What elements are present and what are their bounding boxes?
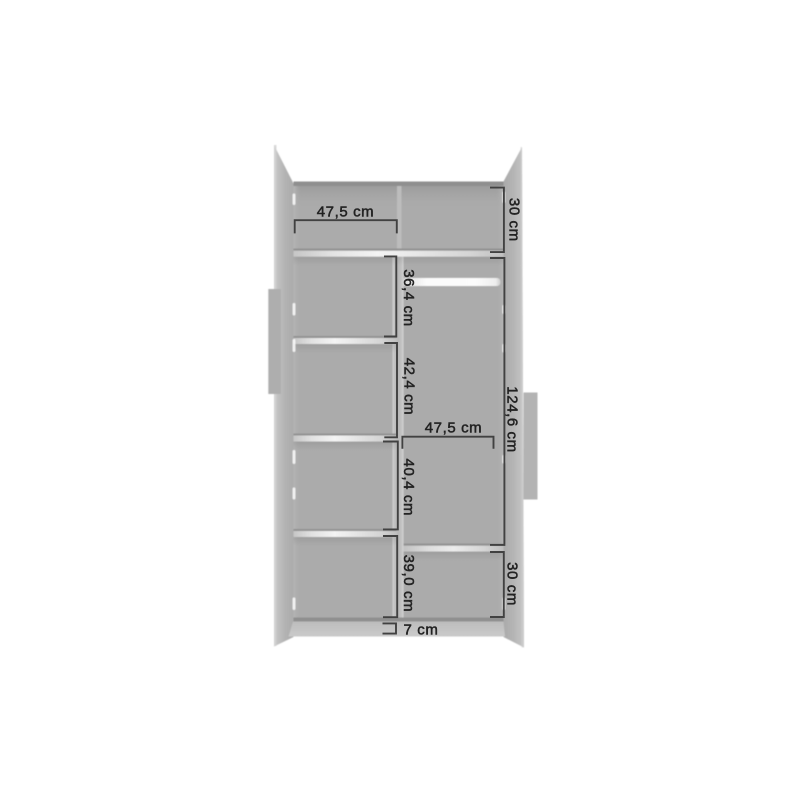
- svg-text:47,5 cm: 47,5 cm: [317, 204, 375, 221]
- svg-text:30 cm: 30 cm: [504, 562, 521, 606]
- svg-text:39,0 cm: 39,0 cm: [400, 555, 417, 613]
- svg-text:124,6 cm: 124,6 cm: [504, 386, 521, 453]
- svg-text:40,4 cm: 40,4 cm: [400, 459, 417, 517]
- svg-text:36,4 cm: 36,4 cm: [400, 269, 417, 327]
- svg-text:42,4 cm: 42,4 cm: [401, 358, 418, 416]
- svg-text:47,5 cm: 47,5 cm: [425, 420, 483, 437]
- svg-text:30 cm: 30 cm: [506, 198, 523, 242]
- svg-text:7 cm: 7 cm: [404, 622, 439, 639]
